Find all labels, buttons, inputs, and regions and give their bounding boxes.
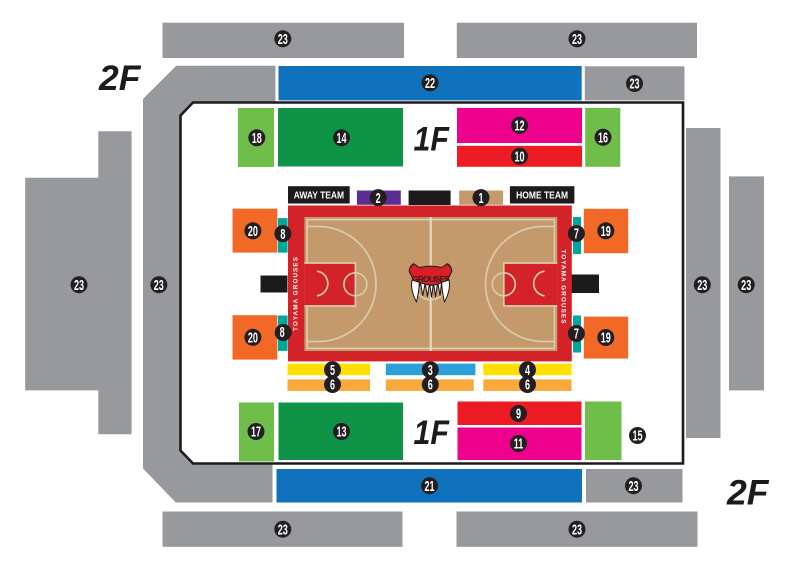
svg-text:1: 1: [478, 190, 483, 207]
svg-text:19: 19: [601, 223, 611, 240]
svg-text:17: 17: [251, 423, 261, 440]
svg-text:14: 14: [336, 130, 346, 147]
svg-text:7: 7: [574, 225, 579, 242]
svg-text:19: 19: [601, 329, 611, 346]
svg-text:TOYAMA GROUSES: TOYAMA GROUSES: [560, 250, 567, 325]
svg-text:8: 8: [280, 324, 285, 341]
svg-text:23: 23: [697, 277, 707, 294]
svg-text:11: 11: [514, 435, 524, 452]
svg-text:8: 8: [280, 226, 285, 243]
svg-text:15: 15: [632, 427, 642, 444]
svg-text:2F: 2F: [98, 58, 142, 98]
svg-text:10: 10: [514, 148, 524, 165]
svg-text:23: 23: [629, 75, 639, 92]
svg-text:9: 9: [516, 405, 521, 422]
svg-text:HOME TEAM: HOME TEAM: [516, 190, 568, 201]
svg-text:1F: 1F: [414, 413, 450, 451]
svg-text:20: 20: [248, 329, 258, 346]
svg-text:23: 23: [278, 521, 288, 538]
svg-text:1F: 1F: [414, 120, 450, 158]
svg-text:18: 18: [252, 130, 262, 147]
svg-text:6: 6: [428, 376, 433, 393]
svg-text:23: 23: [572, 521, 582, 538]
svg-text:TOYAMA GROUSES: TOYAMA GROUSES: [293, 256, 300, 331]
svg-text:16: 16: [598, 129, 608, 146]
svg-text:23: 23: [278, 31, 288, 48]
svg-text:22: 22: [425, 75, 435, 92]
svg-text:23: 23: [628, 478, 638, 495]
svg-text:23: 23: [572, 31, 582, 48]
svg-text:21: 21: [424, 478, 434, 495]
svg-text:23: 23: [74, 277, 84, 294]
svg-text:6: 6: [330, 376, 335, 393]
svg-text:12: 12: [514, 117, 524, 134]
svg-text:2F: 2F: [726, 473, 770, 513]
svg-text:23: 23: [741, 277, 751, 294]
svg-text:20: 20: [248, 223, 258, 240]
svg-text:2: 2: [376, 190, 381, 207]
svg-text:13: 13: [336, 423, 346, 440]
svg-text:6: 6: [525, 376, 530, 393]
svg-text:7: 7: [574, 325, 579, 342]
svg-text:23: 23: [154, 277, 164, 294]
svg-text:AWAY TEAM: AWAY TEAM: [294, 190, 345, 201]
